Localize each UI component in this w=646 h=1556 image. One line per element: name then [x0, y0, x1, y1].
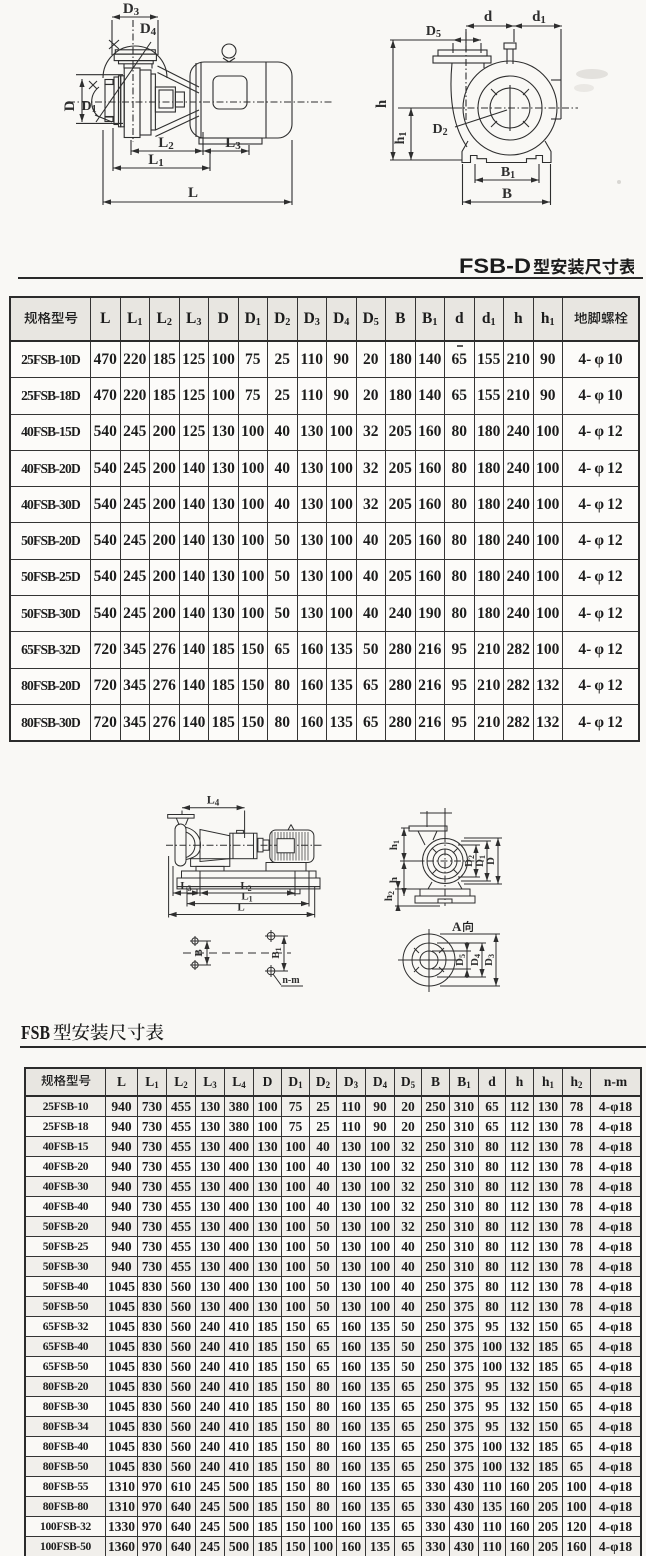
- svg-text:h2: h2: [383, 891, 396, 901]
- svg-text:h1: h1: [388, 840, 401, 850]
- svg-text:D5: D5: [454, 954, 467, 966]
- svg-text:D: D: [485, 857, 497, 865]
- svg-text:D4: D4: [469, 954, 482, 966]
- svg-text:FSB: FSB: [21, 1022, 50, 1044]
- svg-text:L: L: [237, 902, 244, 914]
- svg-text:L3: L3: [180, 880, 191, 893]
- svg-text:B1: B1: [270, 947, 283, 958]
- svg-text:A: A: [452, 919, 462, 934]
- svg-text:n-m: n-m: [282, 975, 300, 986]
- svg-text:L4: L4: [207, 793, 220, 808]
- svg-text:D3: D3: [483, 954, 496, 966]
- svg-text:B: B: [193, 949, 205, 957]
